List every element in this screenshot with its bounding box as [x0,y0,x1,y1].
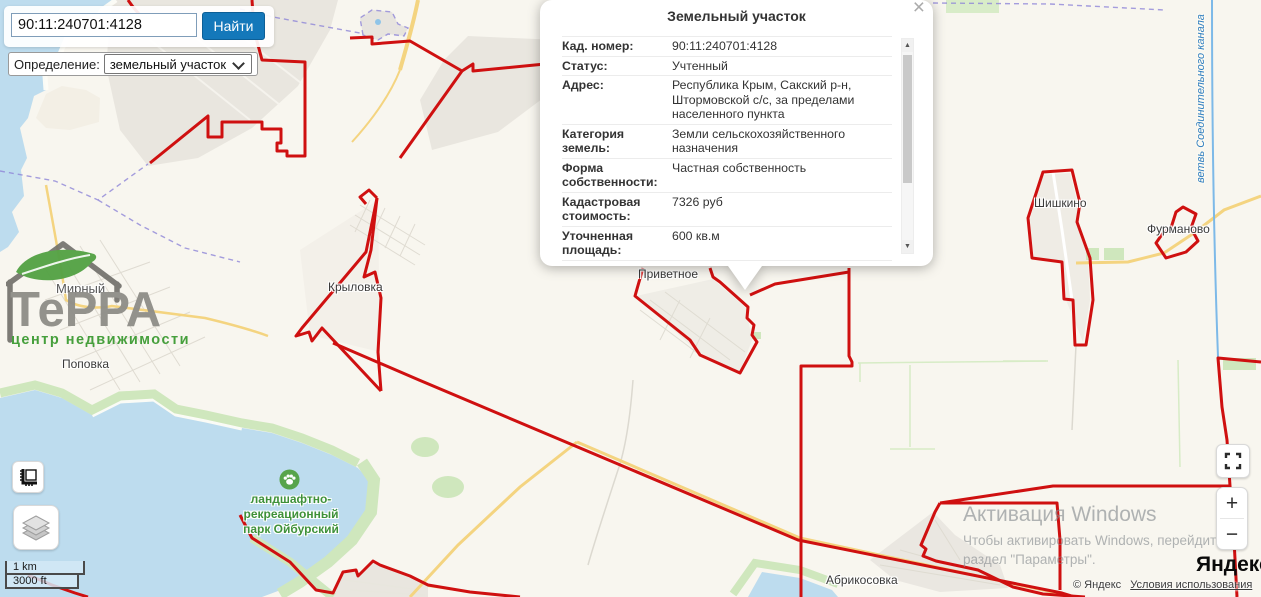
park-paw-icon [279,469,300,490]
map-label-popovka: Поповка [62,357,109,371]
copyright-text: © Яндекс [1073,579,1121,591]
field-row-cost: Кадастровая стоимость: 7326 руб [562,193,892,227]
parcel-popup-body: Земельный участок × Кад. номер: 90:11:24… [540,0,933,266]
search-button[interactable]: Найти [202,12,265,40]
popup-fields: Кад. номер: 90:11:240701:4128 Статус: Уч… [562,36,892,261]
layers-icon [21,514,51,542]
field-value: 90:11:240701:4128 [666,39,892,54]
field-label: Адрес: [562,78,666,122]
pond-dot [375,19,381,25]
park-label-line2: рекреационный [231,507,351,522]
definition-label: Определение: [14,57,100,72]
field-label: Категория земель: [562,127,666,156]
windows-activation-watermark: Активация Windows Чтобы активировать Win… [963,503,1234,567]
ruler-icon [18,467,38,487]
fullscreen-icon [1224,452,1242,470]
terra-logo: ТеРРА центр недвижимости [6,240,186,354]
field-value: Республика Крым, Сакский р-н, Штормовско… [666,78,892,122]
field-value: Земли сельскохозяйственного назначения [666,127,892,156]
field-label: Форма собственности: [562,161,666,190]
scroll-up-icon[interactable]: ▲ [902,39,913,52]
field-label: Кадастровая стоимость: [562,195,666,224]
map-label-shishkino: Шишкино [1034,196,1087,210]
definition-select[interactable]: земельный участок [104,54,252,74]
activation-line1: Чтобы активировать Windows, перейдите в [963,533,1234,548]
search-input[interactable] [11,13,197,37]
map-label-furmanovo: Фурманово [1147,222,1210,236]
search-panel: Найти [4,6,274,47]
scroll-down-icon[interactable]: ▼ [902,240,913,253]
definition-control: Определение: земельный участок [8,52,258,76]
popup-tail [728,266,762,290]
field-row-address: Адрес: Республика Крым, Сакский р-н, Што… [562,76,892,125]
park-label-line1: ландшафтно- [231,492,351,507]
field-value: 7326 руб [666,195,892,224]
terra-tagline: центр недвижимости [11,332,190,348]
chevron-down-icon [232,57,245,70]
map-scale: 1 km 3000 ft [5,561,85,589]
popup-scrollbar[interactable]: ▲ ▼ [901,38,914,254]
popup-title: Земельный участок [540,0,933,24]
field-row-status: Статус: Учтенный [562,57,892,77]
scrollbar-thumb[interactable] [903,55,912,183]
zoom-in-button[interactable]: + [1217,488,1247,518]
field-value: 600 кв.м [666,229,892,258]
map-application: Мирный Поповка Крыловка Приветное Шишкин… [0,0,1261,597]
field-row-area: Уточненная площадь: 600 кв.м [562,227,892,261]
leaf-icon [16,250,96,281]
map-label-abrikosovka: Абрикосовка [826,573,898,587]
field-row-ownership: Форма собственности: Частная собственнос… [562,159,892,193]
park-label-line3: парк Ойбурский [231,522,351,537]
park-label: ландшафтно- рекреационный парк Ойбурский [231,492,351,537]
scale-km: 1 km [5,561,85,575]
field-label: Уточненная площадь: [562,229,666,258]
measure-ruler-button[interactable] [12,461,44,493]
terms-of-use-link[interactable]: Условия использования [1130,579,1252,591]
yandex-logo[interactable]: Яндекс [1196,553,1261,577]
activation-title: Активация Windows [963,503,1234,527]
map-label-krylovka: Крыловка [328,280,383,294]
terra-brand-text: ТеРРА [10,286,161,335]
zoom-panel: + − [1216,487,1248,550]
activation-line2: раздел "Параметры". [963,552,1234,567]
layers-button[interactable] [13,505,59,550]
field-label: Кад. номер: [562,39,666,54]
scale-ft: 3000 ft [5,575,79,589]
field-label: Статус: [562,59,666,74]
field-row-cad-number: Кад. номер: 90:11:240701:4128 [562,37,892,57]
attribution-line: © Яндекс Условия использования [1073,579,1252,591]
field-value: Учтенный [666,59,892,74]
close-icon[interactable]: × [913,0,925,18]
field-row-category: Категория земель: Земли сельскохозяйстве… [562,125,892,159]
zoom-out-button[interactable]: − [1217,519,1247,549]
canal-label: ветвь Соединительного канала [1195,8,1207,183]
fullscreen-button[interactable] [1216,444,1250,478]
field-value: Частная собственность [666,161,892,190]
definition-selected-value: земельный участок [110,57,226,72]
parcel-popup: Земельный участок × Кад. номер: 90:11:24… [540,0,933,290]
